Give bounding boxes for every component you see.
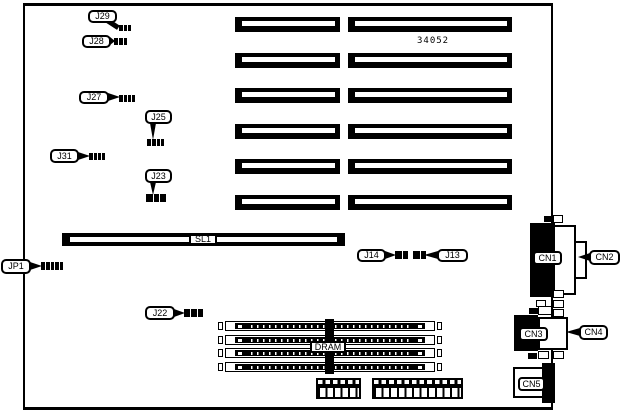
jumper-block-J14 — [395, 251, 408, 259]
label-SL1: SL1 — [189, 234, 217, 245]
jumper-pin-divider — [420, 251, 421, 259]
expansion-slot-r2-right — [348, 53, 512, 68]
pin-header-1-top — [316, 378, 361, 386]
jumper-pin-divider — [190, 309, 191, 317]
callout-pointer-JP1 — [30, 262, 42, 270]
expansion-slot-r6-right — [348, 195, 512, 210]
jumper-pin-divider — [156, 139, 157, 146]
jumper-block-J23 — [146, 194, 166, 202]
callout-pointer-J13 — [424, 251, 438, 259]
label-CN5: CN5 — [518, 377, 545, 391]
callout-CN4: CN4 — [579, 325, 608, 340]
callout-J13: J13 — [437, 249, 468, 262]
slot-stripe — [242, 21, 335, 26]
simm-end-cap — [437, 322, 442, 330]
simm-end-cap — [218, 336, 223, 344]
expansion-slot-r6-left — [235, 195, 340, 210]
slot-stripe — [242, 199, 335, 204]
jumper-pin-divider — [97, 153, 98, 160]
jumper-block-J25 — [147, 139, 164, 146]
connector-tab — [538, 306, 552, 315]
expansion-slot-r2-left — [235, 53, 340, 68]
jumper-pin-divider — [59, 262, 60, 270]
simm-clip — [237, 351, 243, 356]
callout-J14: J14 — [357, 249, 386, 262]
slot-stripe — [242, 57, 335, 62]
jumper-pin-divider — [123, 25, 124, 31]
jumper-pin-divider — [131, 95, 132, 102]
expansion-slot-r3-left — [235, 88, 340, 103]
jumper-pin-divider — [197, 309, 198, 317]
jumper-pin-divider — [127, 25, 128, 31]
expansion-slot-r1-right — [348, 17, 512, 32]
simm-center-tab — [325, 360, 334, 374]
expansion-slot-r1-left — [235, 17, 340, 32]
callout-pointer-CN4 — [566, 328, 580, 336]
jumper-pin-divider — [50, 262, 51, 270]
simm-end-cap — [437, 363, 442, 371]
callout-JP1: JP1 — [1, 259, 31, 274]
callout-pointer-J22 — [174, 309, 185, 317]
expansion-slot-r4-right — [348, 124, 512, 139]
jumper-pin-divider — [123, 95, 124, 102]
jumper-pin-divider — [123, 38, 124, 45]
pin-header-1-pins — [316, 386, 361, 399]
label-DRAM: DRAM — [310, 341, 346, 353]
slot-stripe — [355, 163, 507, 168]
jumper-pin-divider — [45, 262, 46, 270]
jumper-pin-divider — [153, 194, 154, 202]
connector-tab — [553, 351, 564, 359]
connector-tab — [538, 351, 549, 359]
callout-pointer-J27 — [108, 93, 120, 101]
simm-center-tab — [325, 319, 334, 333]
connector-tab — [529, 308, 538, 314]
callout-J23: J23 — [145, 169, 172, 183]
expansion-slot-r3-right — [348, 88, 512, 103]
pin-header-dashes — [374, 380, 461, 384]
jumper-pin-divider — [151, 139, 152, 146]
simm-clip — [237, 365, 243, 370]
simm-clip — [417, 324, 423, 329]
simm-clip — [237, 338, 243, 343]
simm-end-cap — [218, 363, 223, 371]
slot-stripe — [242, 163, 335, 168]
label-CN3: CN3 — [519, 327, 548, 341]
simm-clip — [417, 365, 423, 370]
callout-J25: J25 — [145, 110, 172, 124]
jumper-pin-divider — [127, 95, 128, 102]
expansion-slot-r4-left — [235, 124, 340, 139]
callout-pointer-J31 — [78, 152, 90, 160]
callout-J27: J27 — [79, 91, 109, 104]
jumper-block-JP1 — [41, 262, 63, 270]
jumper-pin-divider — [159, 194, 160, 202]
jumper-block-J31 — [89, 153, 105, 160]
callout-J22: J22 — [145, 306, 175, 320]
simm-clip — [237, 324, 243, 329]
callout-CN2: CN2 — [589, 250, 620, 265]
pin-header-2-pins — [372, 386, 463, 399]
callout-pointer-J23 — [150, 182, 156, 195]
connector-tab — [553, 215, 563, 223]
jumper-block-J29 — [119, 25, 131, 31]
jumper-pin-divider — [402, 251, 403, 259]
simm-clip — [417, 351, 423, 356]
jumper-pin-divider — [118, 38, 119, 45]
pin-header-2-top — [372, 378, 463, 386]
slot-stripe — [355, 21, 507, 26]
slot-stripe — [355, 57, 507, 62]
jumper-pin-divider — [54, 262, 55, 270]
connector-tab — [553, 300, 564, 308]
simm-end-cap — [437, 349, 442, 357]
callout-J28: J28 — [82, 35, 111, 48]
expansion-slot-r5-left — [235, 159, 340, 174]
part-number-text: 34052 — [417, 36, 449, 46]
slot-stripe — [242, 92, 335, 97]
connector-tab — [544, 216, 552, 222]
slot-stripe — [355, 92, 507, 97]
motherboard-diagram: SL1DRAMCN1CN3CN5J29J28J27J25J31J23JP1J22… — [0, 0, 625, 415]
label-CN1: CN1 — [533, 251, 562, 265]
callout-J31: J31 — [50, 149, 79, 163]
connector-tab — [553, 309, 564, 317]
slot-stripe — [355, 128, 507, 133]
connector-tab — [553, 290, 564, 298]
callout-pointer-J25 — [150, 123, 156, 140]
callout-pointer-J14 — [385, 251, 396, 259]
pin-header-dashes — [318, 380, 359, 384]
slot-stripe — [355, 199, 507, 204]
jumper-block-J22 — [184, 309, 203, 317]
components-layer: SL1DRAMCN1CN3CN5J29J28J27J25J31J23JP1J22… — [0, 0, 625, 415]
slot-stripe — [242, 128, 335, 133]
simm-clip — [417, 338, 423, 343]
jumper-pin-divider — [93, 153, 94, 160]
simm-end-cap — [218, 349, 223, 357]
simm-end-cap — [218, 322, 223, 330]
jumper-pin-divider — [160, 139, 161, 146]
simm-end-cap — [437, 336, 442, 344]
expansion-slot-r5-right — [348, 159, 512, 174]
jumper-block-J28 — [114, 38, 127, 45]
jumper-pin-divider — [101, 153, 102, 160]
jumper-block-J27 — [119, 95, 135, 102]
callout-J29: J29 — [88, 10, 117, 23]
connector-tab — [528, 353, 537, 359]
